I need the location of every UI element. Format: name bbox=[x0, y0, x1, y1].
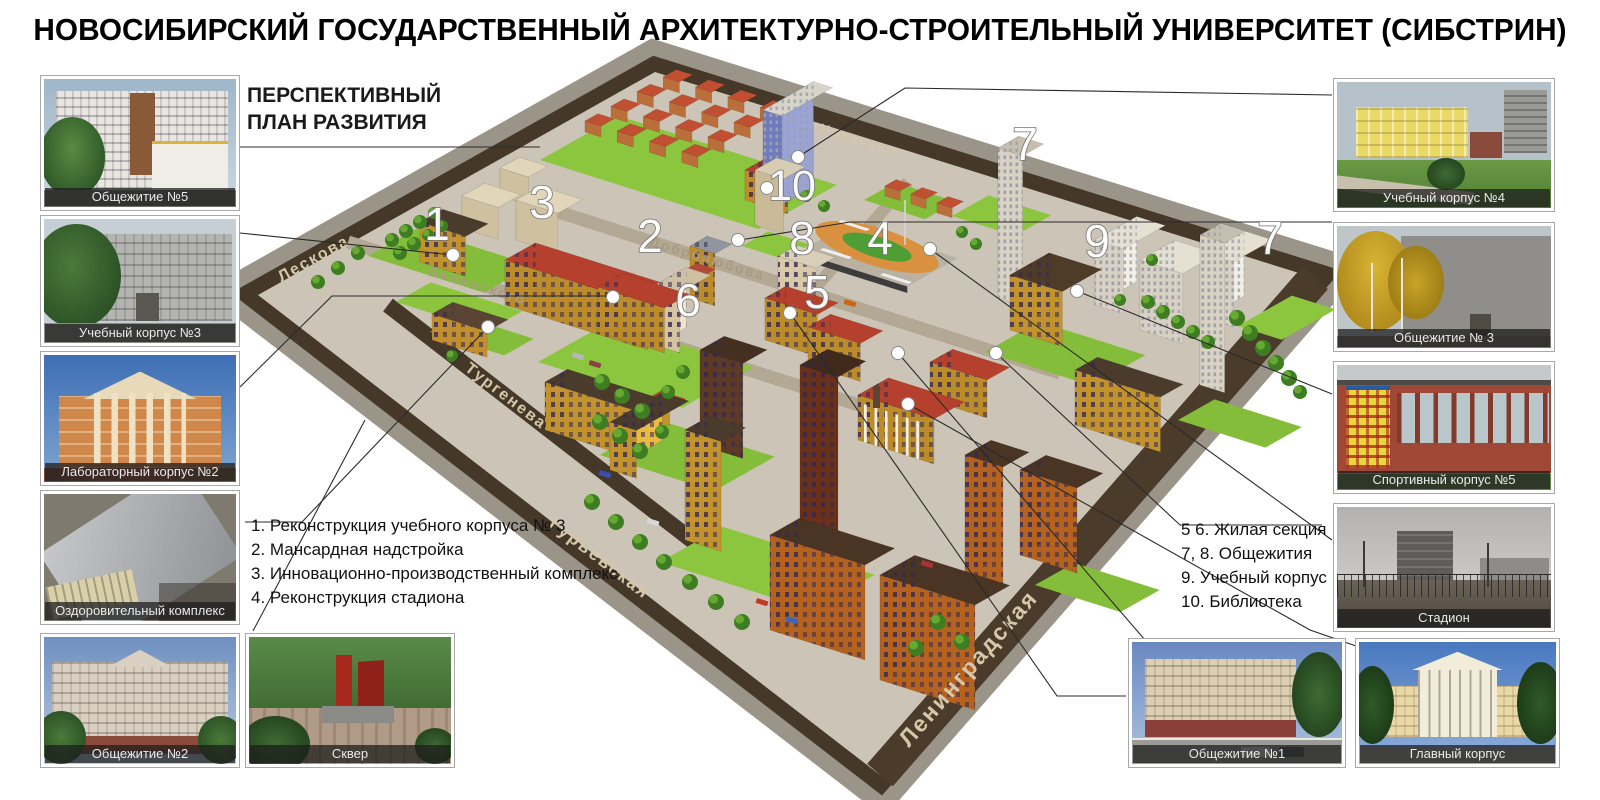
tree-icon bbox=[613, 429, 622, 438]
colonnade bbox=[895, 414, 898, 453]
map-marker-7a: 7 bbox=[1012, 118, 1038, 170]
tree-icon bbox=[657, 555, 666, 564]
windows bbox=[800, 365, 838, 537]
tree-icon bbox=[1256, 341, 1265, 350]
windows bbox=[1020, 470, 1077, 573]
map-marker-7b: 7 bbox=[1257, 212, 1283, 264]
columns bbox=[94, 393, 186, 464]
tree-icon bbox=[615, 389, 624, 398]
page-title: НОВОСИБИРСКИЙ ГОСУДАРСТВЕННЫЙ АРХИТЕКТУР… bbox=[32, 12, 1568, 48]
building bbox=[1356, 107, 1467, 157]
base bbox=[1145, 720, 1296, 737]
map-marker-9: 9 bbox=[1084, 215, 1110, 267]
tree-icon bbox=[408, 238, 416, 246]
legend-buildings: 5 6. Жилая секция 7, 8. Общежития 9. Уче… bbox=[1181, 518, 1327, 615]
tree-icon bbox=[1187, 326, 1195, 334]
colonnade bbox=[906, 417, 909, 456]
legend-item: 4. Реконструкция стадиона bbox=[251, 586, 618, 610]
photo-dorm3: Общежитие № 3 bbox=[1333, 222, 1555, 352]
tree-icon bbox=[1243, 326, 1252, 335]
photo-dorm2: Общежитие №2 bbox=[40, 633, 240, 768]
legend-item: 3. Инновационно-производственный комплек… bbox=[251, 562, 618, 586]
legend-item: 2. Мансардная надстройка bbox=[251, 538, 618, 562]
banner bbox=[1346, 386, 1391, 468]
photo-study4: Учебный корпус №4 bbox=[1333, 78, 1555, 212]
pole bbox=[1363, 541, 1365, 587]
windows bbox=[965, 455, 1003, 587]
map-marker-5: 5 bbox=[804, 266, 830, 318]
tree-icon bbox=[931, 615, 940, 624]
photo-caption: Сквер bbox=[250, 745, 450, 763]
tree-icon bbox=[1115, 295, 1122, 302]
tree-icon bbox=[735, 615, 744, 624]
tree-icon bbox=[585, 495, 594, 504]
photo-dorm1: Общежитие №1 bbox=[1128, 638, 1346, 768]
memorial-stone bbox=[322, 706, 395, 724]
tree-icon bbox=[414, 216, 422, 224]
tree-icon bbox=[595, 375, 604, 384]
trunk bbox=[1401, 258, 1403, 334]
tree-icon bbox=[400, 225, 408, 233]
map-marker-2: 2 bbox=[637, 210, 663, 262]
tree-icon bbox=[352, 247, 360, 255]
photo-caption: Учебный корпус №3 bbox=[45, 324, 235, 342]
tree-icon bbox=[971, 239, 978, 246]
photo-health-complex: Оздоровительный комплекс bbox=[40, 490, 240, 625]
tree-icon bbox=[909, 641, 918, 650]
tree-icon bbox=[1230, 311, 1239, 320]
pole bbox=[1487, 543, 1489, 587]
tree-icon bbox=[656, 426, 664, 434]
tree-icon bbox=[1269, 356, 1278, 365]
tree-icon bbox=[1157, 306, 1165, 314]
legend-item: 5 6. Жилая секция bbox=[1181, 518, 1327, 542]
tree-icon bbox=[447, 351, 454, 358]
tree-icon bbox=[593, 415, 602, 424]
photo-lab2: Лабораторный корпус №2 bbox=[40, 351, 240, 486]
tree-icon bbox=[394, 247, 402, 255]
colonnade bbox=[885, 411, 888, 450]
tree-icon bbox=[955, 635, 964, 644]
entrance bbox=[136, 293, 159, 320]
windows bbox=[685, 430, 721, 551]
photo-caption: Стадион bbox=[1338, 609, 1550, 627]
photo-park: Сквер bbox=[245, 633, 455, 768]
legend-item: 10. Библиотека bbox=[1181, 590, 1327, 614]
window-band bbox=[1397, 393, 1549, 443]
map-marker-3: 3 bbox=[529, 176, 555, 228]
birch-icon bbox=[1388, 246, 1444, 319]
tree-icon bbox=[633, 444, 642, 453]
tree-icon bbox=[312, 276, 320, 284]
tree-icon bbox=[633, 535, 642, 544]
photo-dorm5: Общежитие №5 bbox=[40, 75, 240, 211]
colonnade bbox=[875, 407, 878, 446]
subtitle: ПЕРСПЕКТИВНЫЙ ПЛАН РАЗВИТИЯ bbox=[247, 82, 441, 137]
photo-sport5: Спортивный корпус №5 bbox=[1333, 361, 1555, 494]
photo-caption: Учебный корпус №4 bbox=[1338, 189, 1550, 207]
tree-icon bbox=[677, 366, 685, 374]
map-marker-10: 10 bbox=[768, 162, 816, 210]
tree-icon bbox=[1142, 296, 1150, 304]
photo-stadium: Стадион bbox=[1333, 503, 1555, 632]
tree-icon bbox=[332, 262, 340, 270]
map-marker-8: 8 bbox=[789, 212, 815, 264]
photo-caption: Лабораторный корпус №2 bbox=[45, 463, 235, 481]
map-marker-6: 6 bbox=[675, 274, 701, 326]
tree-icon bbox=[1172, 316, 1180, 324]
fence bbox=[1337, 574, 1551, 597]
map-marker-4: 4 bbox=[867, 212, 893, 264]
tree-icon bbox=[1292, 652, 1342, 737]
colonnade bbox=[916, 421, 919, 460]
roofline bbox=[1337, 380, 1551, 385]
portico bbox=[1418, 669, 1497, 737]
photo-study3: Учебный корпус №3 bbox=[40, 215, 240, 347]
photo-caption: Общежитие №5 bbox=[45, 188, 235, 206]
tree-icon bbox=[662, 386, 670, 394]
photo-main-building: Главный корпус bbox=[1355, 638, 1560, 768]
trunk bbox=[1371, 263, 1373, 334]
red-annex bbox=[1470, 132, 1502, 157]
subtitle-line1: ПЕРСПЕКТИВНЫЙ bbox=[247, 82, 441, 109]
photo-caption: Оздоровительный комплекс bbox=[45, 602, 235, 620]
photo-caption: Главный корпус bbox=[1360, 745, 1555, 763]
photo-caption: Общежитие № 3 bbox=[1338, 329, 1550, 347]
tall-building-bg bbox=[1504, 90, 1547, 153]
tree-icon bbox=[1147, 255, 1154, 262]
legend-item: 7, 8. Общежития bbox=[1181, 542, 1327, 566]
monument bbox=[873, 392, 880, 408]
tree-icon bbox=[635, 404, 644, 413]
monument bbox=[873, 385, 881, 393]
tree-icon bbox=[709, 595, 718, 604]
tree-icon bbox=[957, 227, 964, 234]
tree-icon bbox=[819, 201, 826, 208]
poster: Лескова Белинского Добролюбова Тургенева… bbox=[0, 0, 1600, 800]
tree-icon bbox=[386, 234, 394, 242]
tree-icon bbox=[1294, 386, 1302, 394]
photo-caption: Общежитие №1 bbox=[1133, 745, 1341, 763]
windows bbox=[1200, 235, 1225, 393]
legend-projects: 1. Реконструкция учебного корпуса № 3 2.… bbox=[251, 514, 618, 611]
map-marker-1: 1 bbox=[424, 198, 450, 250]
photo-caption: Спортивный корпус №5 bbox=[1338, 471, 1550, 489]
annex bbox=[152, 141, 229, 190]
tree-icon bbox=[683, 575, 692, 584]
legend-item: 9. Учебный корпус bbox=[1181, 566, 1327, 590]
legend-item: 1. Реконструкция учебного корпуса № 3 bbox=[251, 514, 618, 538]
subtitle-line2: ПЛАН РАЗВИТИЯ bbox=[247, 109, 441, 136]
photo-caption: Общежитие №2 bbox=[45, 745, 235, 763]
